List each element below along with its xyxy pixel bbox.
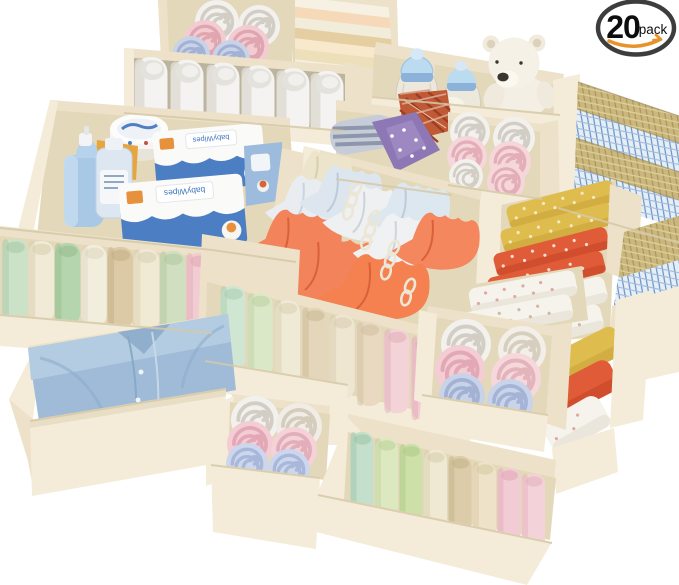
- svg-text:20: 20: [606, 9, 640, 45]
- svg-text:pack: pack: [639, 22, 668, 37]
